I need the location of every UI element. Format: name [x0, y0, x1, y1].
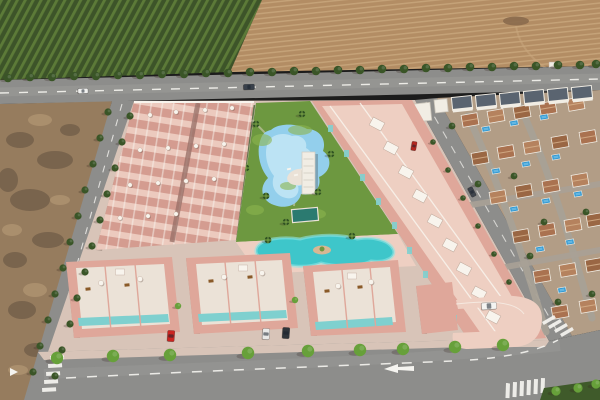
roadside-tree-highlight — [448, 168, 450, 170]
parasol — [203, 108, 207, 112]
road-tree — [444, 64, 453, 73]
road-tree — [48, 73, 57, 82]
avenue-tree — [74, 212, 81, 219]
crosswalk-bar — [526, 380, 531, 395]
show-building-shadow — [315, 154, 318, 194]
avenue-tree-highlight — [122, 139, 125, 142]
parasol — [222, 142, 226, 146]
c-window — [423, 271, 428, 278]
hedge-tree-highlight — [556, 388, 560, 392]
avenue-tree — [103, 190, 110, 197]
c-window — [376, 198, 381, 205]
c-window — [360, 174, 365, 181]
road-tree-highlight — [140, 72, 143, 75]
avenue-tree-highlight — [77, 295, 80, 298]
road-tree-highlight — [118, 72, 121, 75]
crosswalk-bar — [48, 363, 62, 368]
avenue-tree — [44, 316, 51, 323]
village-house — [515, 184, 533, 199]
village-tree — [555, 299, 562, 306]
village-pool — [558, 287, 567, 293]
parasol — [335, 283, 340, 288]
avenue-tree-highlight — [100, 217, 103, 220]
village-house — [461, 113, 479, 128]
village-tree-highlight — [558, 300, 561, 303]
villa-roof-box — [116, 269, 125, 275]
avenue-tree-highlight — [40, 343, 43, 346]
road-tree-highlight — [404, 66, 407, 69]
village-house — [542, 179, 560, 194]
village-pool — [540, 114, 549, 120]
road-tree-highlight — [184, 71, 187, 74]
lawn-patch — [246, 205, 264, 215]
village-tree — [541, 219, 548, 226]
hedge-tree-highlight — [578, 385, 582, 389]
white-townhouse — [523, 89, 544, 106]
lawn-patch — [288, 125, 312, 135]
dirt-patch-dark — [37, 151, 73, 169]
road-tree-highlight — [74, 73, 77, 76]
avenue-tree-highlight — [85, 187, 88, 190]
village-tree — [527, 253, 534, 260]
road-tree-highlight — [596, 61, 599, 64]
sidewalk-tree-highlight — [112, 352, 117, 357]
sidewalk-tree — [449, 341, 461, 353]
village-house — [497, 145, 515, 160]
village-house — [585, 258, 600, 273]
hedge-tree-highlight — [596, 381, 600, 385]
lap-pool-water — [291, 207, 318, 222]
road-tree-highlight — [8, 75, 11, 78]
sidewalk-tree-highlight — [247, 349, 252, 354]
parasol — [259, 270, 264, 275]
road-tree — [488, 63, 497, 72]
avenue-tree — [36, 342, 43, 349]
yard-tree-highlight — [295, 298, 298, 301]
village-pool — [510, 206, 519, 212]
crosswalk-bar — [533, 379, 538, 394]
parasol — [166, 146, 170, 150]
road-tree-highlight — [536, 63, 539, 66]
avenue-tree — [66, 238, 73, 245]
parasol — [212, 177, 216, 181]
avenue-tree-highlight — [70, 239, 73, 242]
hedge-tree — [573, 383, 582, 392]
villa-roof-box — [239, 265, 248, 271]
aerial-photo-frame — [0, 0, 600, 400]
car-white-main-road — [77, 88, 88, 94]
road-tree — [400, 65, 409, 74]
avenue-tree — [29, 368, 36, 375]
avenue-tree-highlight — [48, 317, 51, 320]
village-tree — [583, 209, 590, 216]
village-tree — [449, 123, 456, 130]
car-glass — [283, 331, 289, 335]
roadside-tree — [491, 251, 497, 257]
white-townhouse — [451, 95, 472, 112]
plowed-field — [230, 0, 600, 72]
car-glass — [247, 85, 250, 89]
roof-furniture — [124, 283, 129, 287]
roadside-tree-highlight — [494, 252, 496, 254]
road-tree-highlight — [514, 63, 517, 66]
dirt-patch-dark — [3, 252, 27, 268]
parasol — [184, 179, 188, 183]
village-pool — [566, 239, 575, 245]
yard-tree-highlight — [178, 304, 181, 307]
road-tree-highlight — [96, 73, 99, 76]
avenue-tree-highlight — [33, 369, 36, 372]
village-tree-highlight — [514, 174, 517, 177]
roadside-tree-highlight — [478, 224, 480, 226]
village-house — [533, 269, 551, 284]
parasol — [174, 110, 178, 114]
road-tree — [554, 61, 563, 70]
road-tree — [510, 62, 519, 71]
parasol — [368, 279, 373, 284]
avenue-tree — [66, 320, 73, 327]
sidewalk-tree — [397, 343, 409, 355]
village-house — [579, 299, 597, 314]
village-tree — [475, 181, 482, 188]
road-tree-highlight — [382, 66, 385, 69]
white-townhouse — [475, 93, 496, 110]
road-tree — [26, 73, 35, 82]
roadside-tree-highlight — [433, 140, 435, 142]
road-tree-highlight — [470, 64, 473, 67]
avenue-tree-highlight — [78, 213, 81, 216]
village-tree-highlight — [544, 220, 547, 223]
road-tree-highlight — [206, 70, 209, 73]
avenue-tree — [81, 268, 88, 275]
road-tree-highlight — [360, 67, 363, 70]
c-window — [344, 150, 349, 157]
sidewalk-tree — [302, 345, 314, 357]
roadside-tree-highlight — [463, 196, 465, 198]
avenue-tree-highlight — [100, 135, 103, 138]
village-house — [487, 109, 505, 124]
village-tree-highlight — [452, 124, 455, 127]
car-red-driveway — [166, 330, 174, 342]
crosswalk-bar — [42, 387, 56, 392]
dirt-patch-dark — [8, 301, 36, 319]
road-tree-highlight — [316, 68, 319, 71]
sidewalk-tree — [51, 352, 63, 364]
avenue-tree — [51, 290, 58, 297]
aerial-photo-residential-complex — [0, 0, 600, 400]
road-tree — [312, 67, 321, 76]
road-tree — [592, 60, 600, 69]
sidewalk-tree — [107, 350, 119, 362]
village-pool — [522, 161, 531, 167]
road-tree-highlight — [492, 64, 495, 67]
dirt-patch-light — [28, 114, 52, 126]
sidewalk-tree-highlight — [169, 351, 174, 356]
road-tree — [246, 68, 255, 77]
village-tree-highlight — [478, 182, 481, 185]
road-tree — [532, 62, 541, 71]
yard-tree — [292, 297, 298, 303]
road-tree — [290, 67, 299, 76]
village-tree-highlight — [592, 292, 595, 295]
road-tree — [466, 63, 475, 72]
avenue-tree-highlight — [55, 373, 58, 376]
roof-furniture — [85, 287, 90, 291]
white-villa — [434, 99, 448, 113]
village-tree — [511, 173, 518, 180]
road-tree — [268, 68, 277, 77]
car-glass — [168, 334, 174, 338]
roadside-tree — [445, 167, 451, 173]
roof-furniture — [357, 285, 362, 289]
road-tree-highlight — [52, 74, 55, 77]
road-tree-highlight — [30, 74, 33, 77]
road-tree-highlight — [580, 62, 583, 65]
dirt-patch-light — [23, 283, 47, 297]
orchard-field — [0, 0, 262, 80]
road-tree — [136, 71, 145, 80]
car-dark-driveway — [281, 327, 289, 339]
village-house — [489, 190, 507, 205]
avenue-tree-highlight — [55, 291, 58, 294]
parasol — [146, 214, 150, 218]
parasol — [230, 106, 234, 110]
roof-furniture — [324, 289, 329, 293]
villa-roof-box — [348, 273, 357, 279]
avenue-tree-highlight — [108, 109, 111, 112]
roof-furniture — [247, 275, 252, 279]
parasol — [221, 274, 226, 279]
avenue-tree-highlight — [92, 243, 95, 246]
avenue-tree — [59, 264, 66, 271]
avenue-tree — [104, 108, 111, 115]
avenue-tree — [111, 164, 118, 171]
road-tree — [158, 70, 167, 79]
crosswalk-bar — [44, 379, 58, 384]
parasol — [128, 183, 132, 187]
roadside-tree — [430, 139, 436, 145]
village-house — [471, 151, 489, 166]
lap-pool — [291, 207, 318, 222]
road-tree — [202, 69, 211, 78]
road-tree — [4, 74, 13, 83]
avenue-tree-highlight — [93, 161, 96, 164]
road-tree-highlight — [338, 67, 341, 70]
village-tree-highlight — [530, 254, 533, 257]
sidewalk-tree-highlight — [502, 341, 507, 346]
village-house — [523, 140, 541, 155]
roadside-tree-highlight — [509, 280, 511, 282]
avenue-tree — [73, 294, 80, 301]
avenue-tree-highlight — [115, 165, 118, 168]
parasol — [174, 212, 178, 216]
road-tree — [422, 64, 431, 73]
c-window — [328, 125, 333, 132]
road-tree — [180, 70, 189, 79]
sidewalk-tree — [354, 344, 366, 356]
c-window — [392, 222, 397, 229]
avenue-tree-highlight — [85, 269, 88, 272]
avenue-tree — [88, 242, 95, 249]
village-tree — [589, 291, 596, 298]
road-tree — [576, 61, 585, 70]
car-glass — [263, 332, 269, 336]
sidewalk-tree-highlight — [56, 354, 61, 359]
roof-furniture — [208, 279, 213, 283]
village-house — [579, 130, 597, 145]
village-pool — [482, 126, 491, 132]
village-house — [512, 229, 530, 244]
road-tree-highlight — [250, 69, 253, 72]
village-house — [571, 173, 589, 188]
avenue-tree — [126, 112, 133, 119]
road-tree — [70, 72, 79, 81]
road-tree — [114, 71, 123, 80]
avenue-tree-highlight — [130, 113, 133, 116]
village-pool — [542, 198, 551, 204]
village-pool — [510, 120, 519, 126]
dirt-patch-light — [50, 195, 70, 205]
parasol — [156, 181, 160, 185]
avenue-tree — [96, 134, 103, 141]
avenue-tree — [96, 216, 103, 223]
white-townhouse — [547, 87, 568, 104]
white-townhouse — [571, 85, 592, 102]
car-glass — [487, 303, 492, 309]
road-tree-highlight — [228, 70, 231, 73]
crosswalk-bar — [512, 382, 517, 397]
white-townhouse — [499, 91, 520, 108]
dirt-patch-dark — [60, 124, 80, 136]
parasol — [137, 276, 142, 281]
sidewalk-tree-highlight — [454, 343, 459, 348]
c-window — [407, 247, 412, 254]
road-tree — [224, 69, 233, 78]
sidewalk-tree-highlight — [402, 345, 407, 350]
suv-white-ramp — [481, 302, 497, 311]
road-tree — [356, 66, 365, 75]
village-house — [564, 218, 582, 233]
parasol — [148, 113, 152, 117]
garage-block — [416, 282, 458, 334]
dirt-patch-dark — [10, 189, 50, 211]
avenue-tree-highlight — [62, 347, 65, 350]
parasol — [118, 216, 122, 220]
village-tree-highlight — [586, 210, 589, 213]
sidewalk-tree-highlight — [307, 347, 312, 352]
road-tree — [334, 66, 343, 75]
village-pool — [536, 246, 545, 252]
village-pool — [492, 168, 501, 174]
avenue-tree — [89, 160, 96, 167]
road-tree — [92, 72, 101, 81]
road-tree-highlight — [272, 69, 275, 72]
van-dark-main-road — [243, 84, 255, 90]
dirt-patch-dark — [6, 132, 34, 148]
road-tree-highlight — [294, 68, 297, 71]
car-glass — [81, 89, 84, 93]
avenue-tree — [51, 372, 58, 379]
avenue-tree-highlight — [63, 265, 66, 268]
road-tree — [378, 65, 387, 74]
dirt-patch-dark — [32, 232, 64, 248]
village-house — [551, 135, 569, 150]
village-house — [586, 213, 600, 228]
road-tree-highlight — [558, 62, 561, 65]
sidewalk-tree-highlight — [359, 346, 364, 351]
sidewalk-tree — [164, 349, 176, 361]
dirt-patch-light — [2, 224, 22, 236]
avenue-tree — [81, 186, 88, 193]
road-tree-highlight — [426, 65, 429, 68]
sidewalk-tree — [242, 347, 254, 359]
village-pool — [574, 191, 583, 197]
parasol — [98, 280, 103, 285]
crosswalk-bar — [505, 383, 510, 398]
parasol — [138, 148, 142, 152]
village-house — [559, 263, 577, 278]
crosswalk-bar — [519, 381, 524, 396]
lawn-patch — [252, 134, 272, 146]
yard-tree — [175, 303, 181, 309]
car-white-driveway — [261, 328, 269, 340]
roadside-tree — [475, 223, 481, 229]
road-tree-highlight — [448, 65, 451, 68]
roadside-tree — [460, 195, 466, 201]
avenue-tree-highlight — [107, 191, 110, 194]
avenue-tree — [118, 138, 125, 145]
parasol — [194, 144, 198, 148]
road-tree-highlight — [162, 71, 165, 74]
roadside-tree — [506, 279, 512, 285]
lagoon-island-green — [320, 247, 325, 252]
village-pool — [552, 154, 561, 160]
hedge-tree — [551, 386, 560, 395]
sidewalk-tree — [497, 339, 509, 351]
field-debris — [503, 17, 529, 26]
avenue-tree-highlight — [70, 321, 73, 324]
